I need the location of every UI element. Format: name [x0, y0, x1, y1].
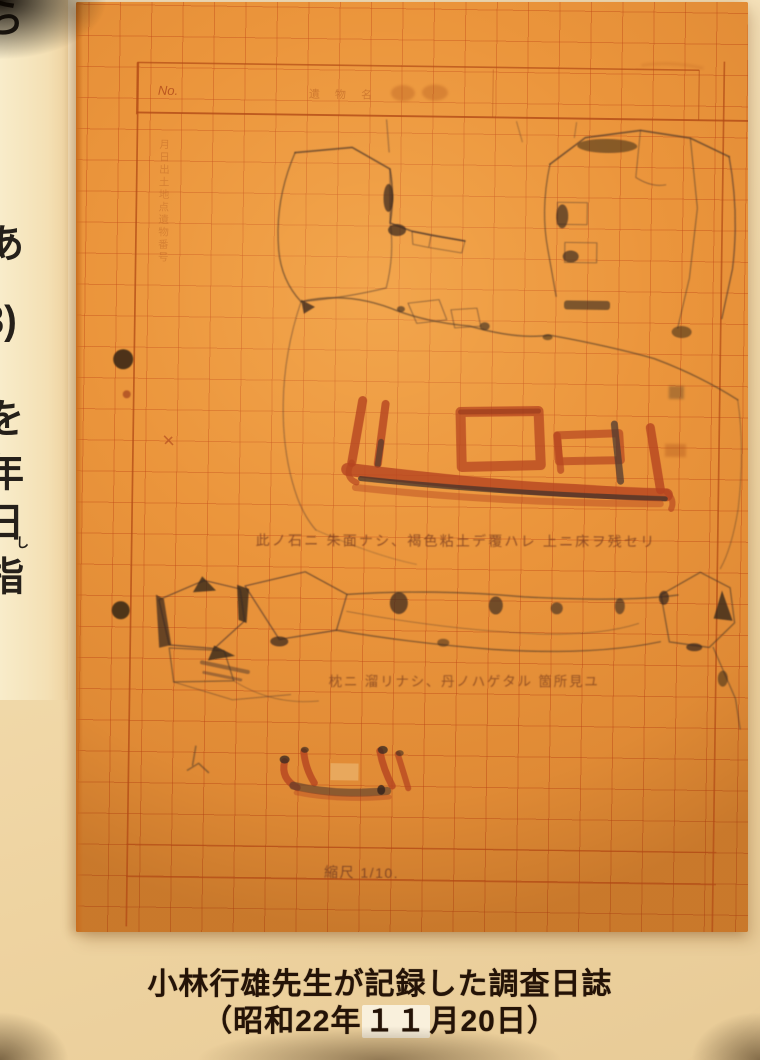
caption-line2: （昭和22年１１月20日） — [0, 1003, 760, 1040]
caption-line1: 小林行雄先生が記録した調査日誌 — [0, 966, 760, 1003]
smudge — [665, 444, 686, 457]
poster-char: 指 — [0, 545, 24, 602]
caption-line2-prefix: （昭和22年 — [202, 1005, 361, 1038]
smudge — [669, 386, 684, 399]
caption-line2-suffix: 月20日） — [430, 1005, 558, 1038]
diary-sketch-svg: No. 遺 物 名 月日出土地点遺物番号 — [76, 2, 748, 932]
punch-hole-bottom — [112, 601, 130, 619]
caption-date-correction-patch: １１ — [362, 1005, 430, 1038]
no-label: No. — [158, 83, 178, 98]
poster-char: 年 — [0, 441, 24, 498]
header-printed-label: 遺 物 名 — [309, 87, 378, 102]
poster-left-column: ら あ 3) を 年 日 し 指 — [0, 0, 68, 700]
poster-char: あ — [0, 212, 24, 269]
red-rectangle-small — [557, 432, 621, 462]
red-ink-drawing-small — [279, 744, 409, 799]
light-patch — [330, 763, 358, 780]
handwritten-note-1: 此ノ石ニ 朱面ナシ、褐色粘土デ覆ハレ 上ニ床ヲ残セリ — [256, 532, 657, 549]
punch-hole-top — [113, 349, 133, 369]
margin-printed-label: 月日出土地点遺物番号 — [157, 139, 171, 264]
caption: 小林行雄先生が記録した調査日誌 （昭和22年１１月20日） — [0, 966, 760, 1040]
handwritten-note-2: 枕ニ 溜リナシ、丹ノハゲタル 箇所見ユ — [329, 673, 600, 689]
header-handwriting-smudge — [422, 84, 448, 100]
poster-char: 3) — [0, 299, 17, 344]
red-dot — [123, 390, 131, 398]
graph-paper: No. 遺 物 名 月日出土地点遺物番号 — [76, 2, 748, 932]
poster-char: ら — [0, 0, 24, 44]
small-red-mark — [164, 436, 173, 445]
header-handwriting-smudge — [391, 85, 415, 101]
poster-char: を — [0, 387, 24, 444]
faint-scribble — [641, 63, 703, 68]
scale-note: 縮尺 1/10. — [324, 864, 399, 881]
handwritten-notes: 此ノ石ニ 朱面ナシ、褐色粘土デ覆ハレ 上ニ床ヲ残セリ 枕ニ 溜リナシ、丹ノハゲタ… — [251, 528, 657, 885]
red-rectangle-large — [460, 410, 542, 468]
survey-diary-sheet: No. 遺 物 名 月日出土地点遺物番号 — [76, 2, 748, 932]
red-ink-drawing — [347, 400, 674, 509]
exhibit-photo: ら あ 3) を 年 日 し 指 — [0, 0, 760, 1060]
sheet-left-edge-shadow — [76, 2, 83, 932]
punch-holes — [110, 349, 134, 619]
